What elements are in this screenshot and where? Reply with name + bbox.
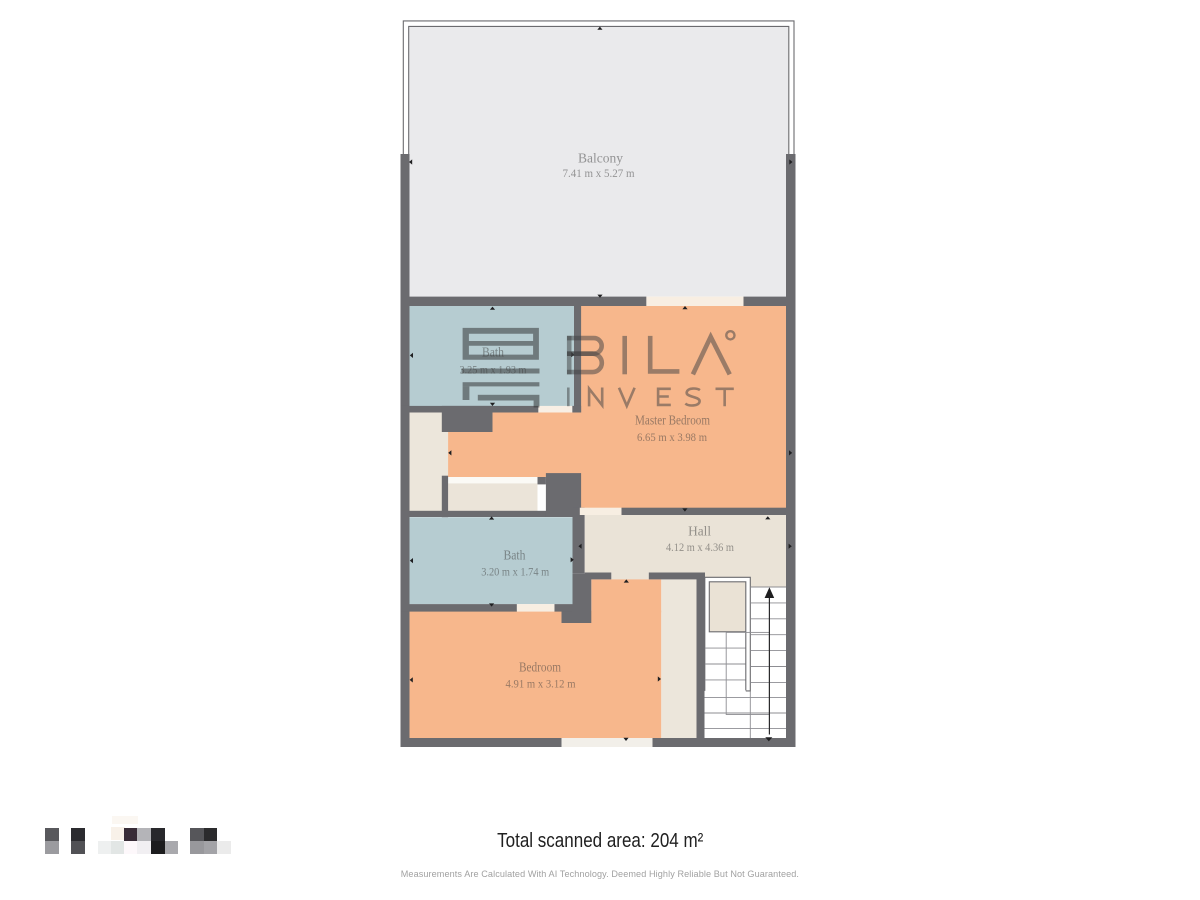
svg-text:Master Bedroom: Master Bedroom [635,414,710,429]
svg-text:4.91 m x 3.12 m: 4.91 m x 3.12 m [506,676,577,690]
svg-text:Hall: Hall [688,525,711,540]
svg-text:Bedroom: Bedroom [519,661,561,676]
svg-text:4.12 m x 4.36 m: 4.12 m x 4.36 m [666,540,735,554]
svg-text:Bath: Bath [504,549,526,564]
svg-text:7.41 m x 5.27 m: 7.41 m x 5.27 m [563,166,636,180]
svg-text:6.65 m x 3.98 m: 6.65 m x 3.98 m [637,430,708,444]
svg-text:3.25 m x 1.93 m: 3.25 m x 1.93 m [460,363,528,377]
svg-text:3.20 m x 1.74 m: 3.20 m x 1.74 m [481,564,550,578]
svg-text:Bath: Bath [482,346,504,361]
svg-text:Balcony: Balcony [578,151,623,166]
